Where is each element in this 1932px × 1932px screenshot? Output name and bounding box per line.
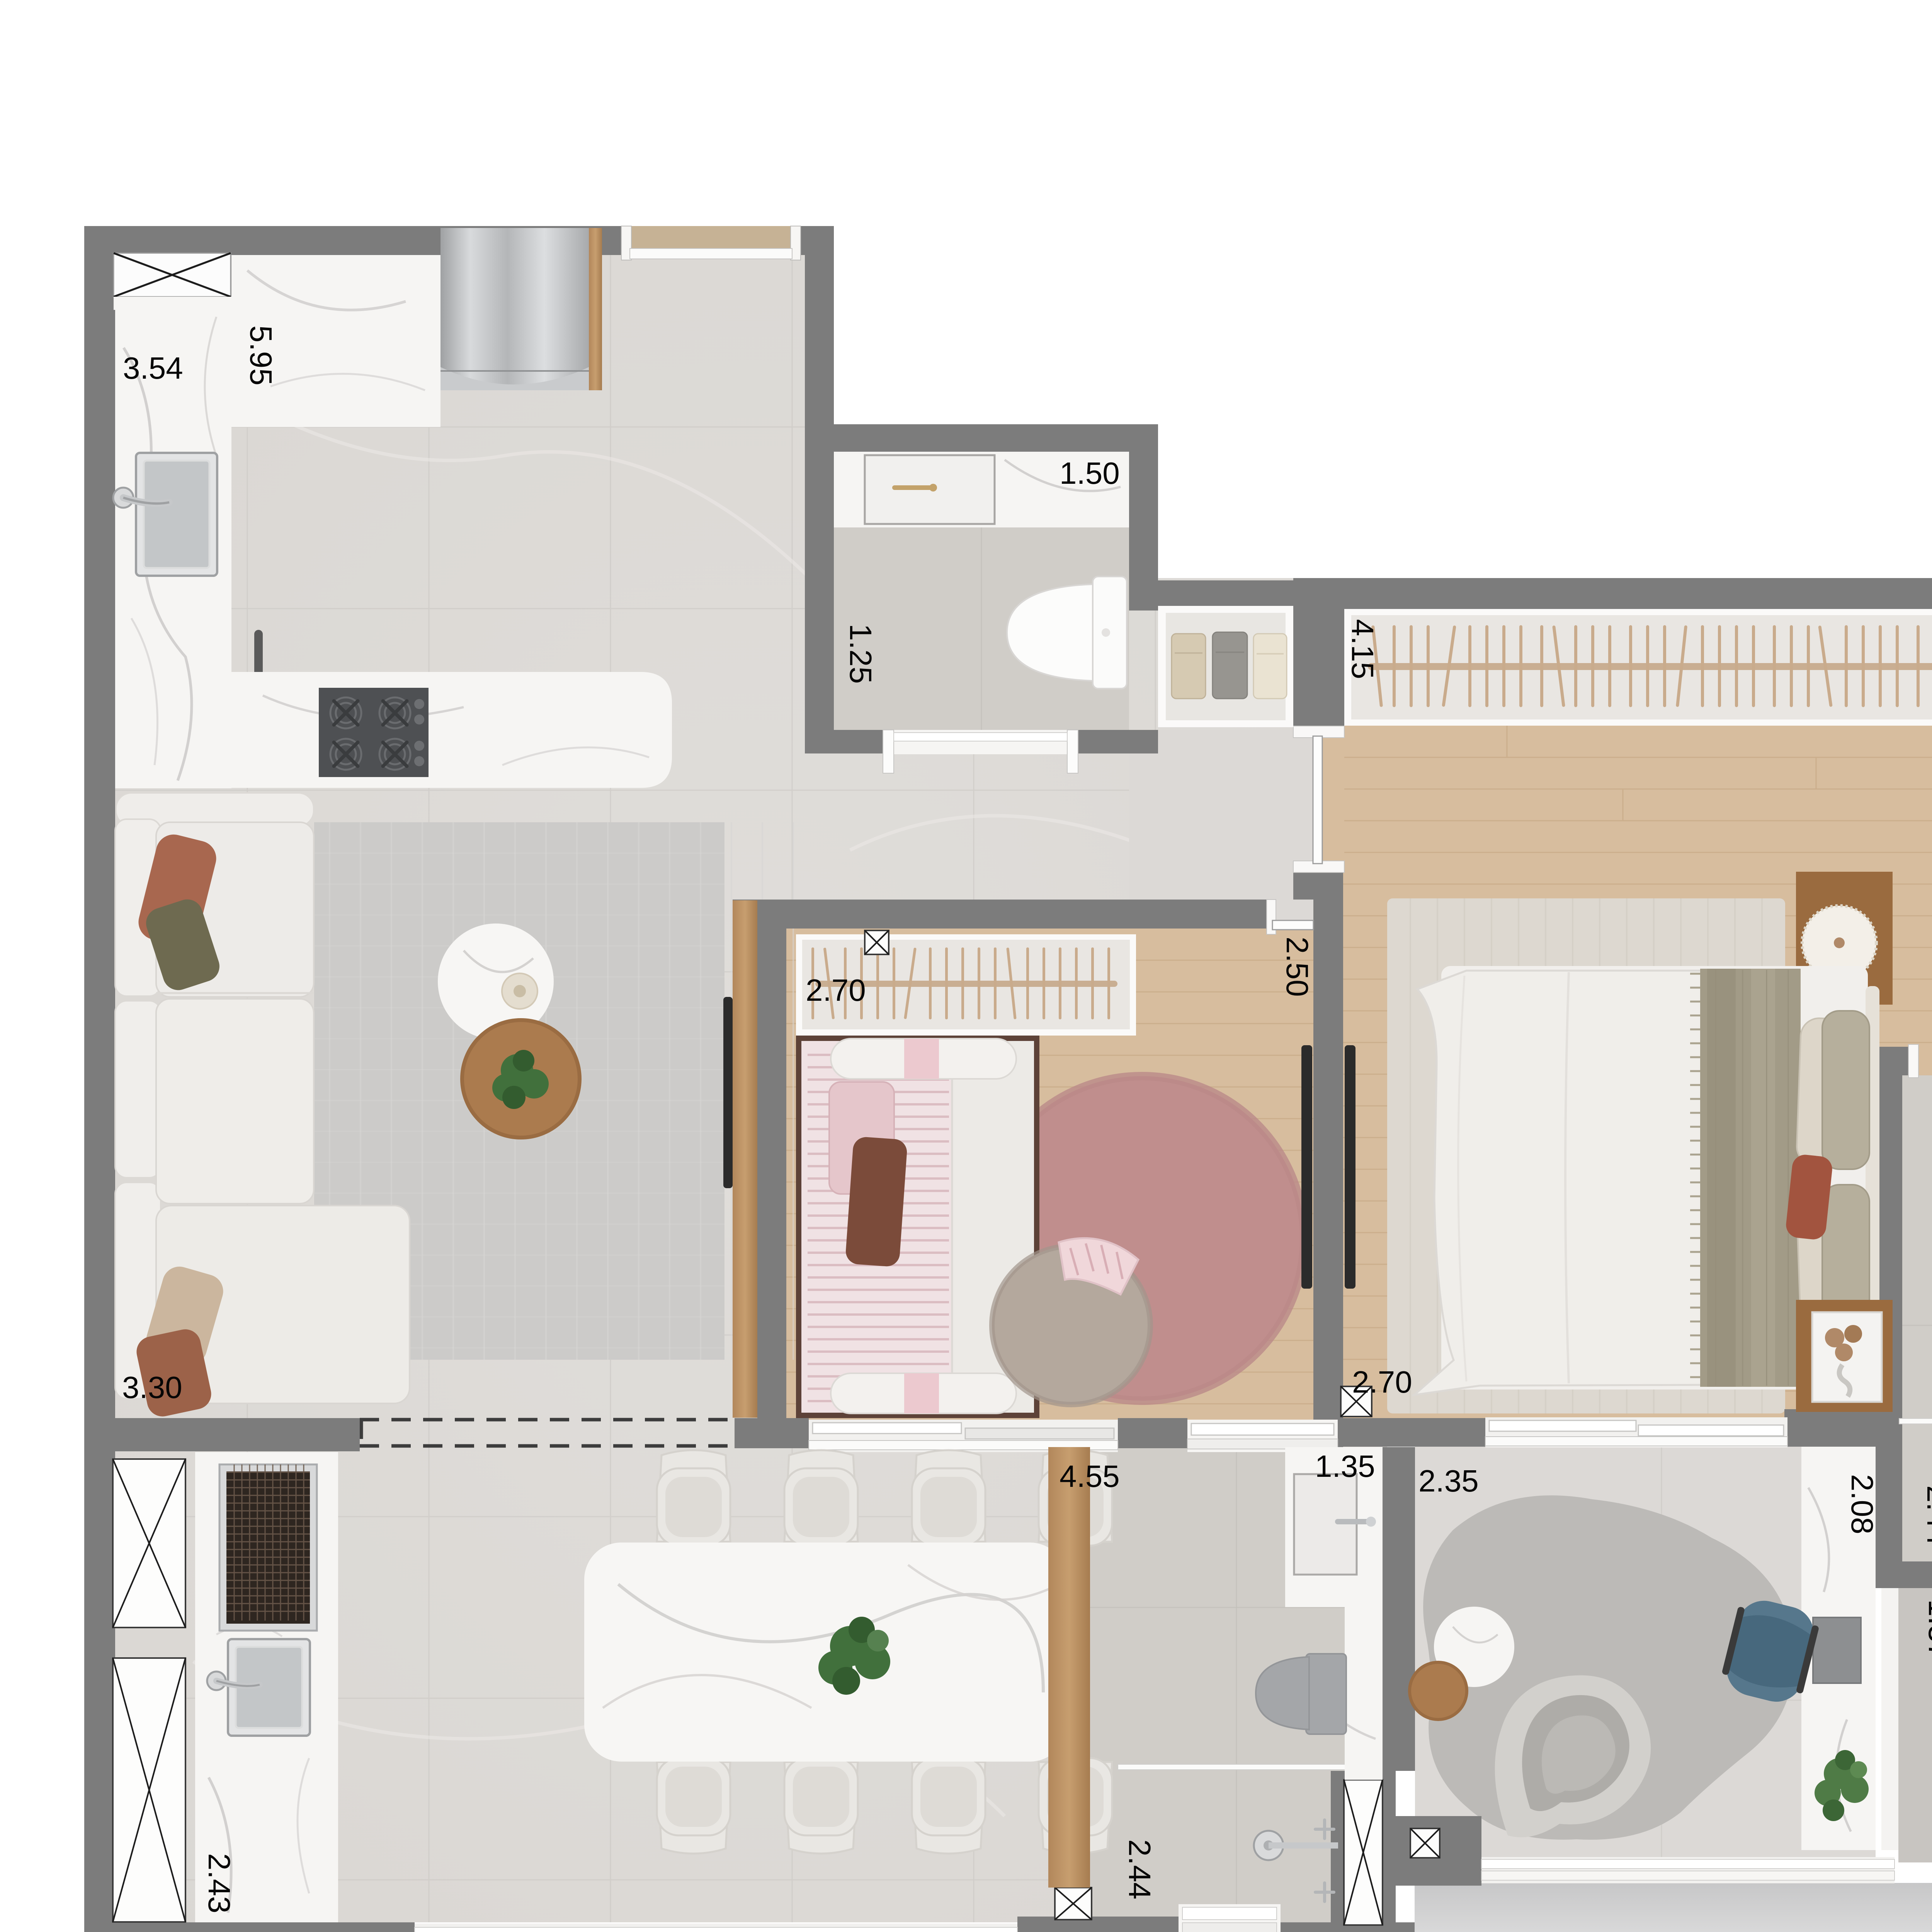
svg-text:3.54: 3.54 bbox=[123, 351, 183, 385]
svg-text:5.95: 5.95 bbox=[244, 325, 278, 386]
svg-text:2.44: 2.44 bbox=[1122, 1839, 1157, 1900]
svg-text:4.55: 4.55 bbox=[1060, 1459, 1120, 1493]
svg-text:1.25: 1.25 bbox=[844, 624, 878, 684]
svg-text:3.30: 3.30 bbox=[122, 1370, 182, 1405]
svg-text:2.08: 2.08 bbox=[1845, 1474, 1879, 1534]
svg-text:2.70: 2.70 bbox=[1352, 1365, 1412, 1399]
svg-text:1.37: 1.37 bbox=[1922, 1599, 1932, 1660]
svg-text:2.35: 2.35 bbox=[1418, 1464, 1479, 1498]
svg-text:4.15: 4.15 bbox=[1345, 619, 1380, 679]
svg-text:2.43: 2.43 bbox=[202, 1853, 236, 1913]
svg-text:1.50: 1.50 bbox=[1060, 456, 1120, 490]
svg-text:1.35: 1.35 bbox=[1315, 1449, 1375, 1483]
svg-text:2.50: 2.50 bbox=[1280, 937, 1315, 997]
svg-text:2.44: 2.44 bbox=[1921, 1485, 1932, 1546]
svg-text:2.70: 2.70 bbox=[806, 973, 866, 1007]
